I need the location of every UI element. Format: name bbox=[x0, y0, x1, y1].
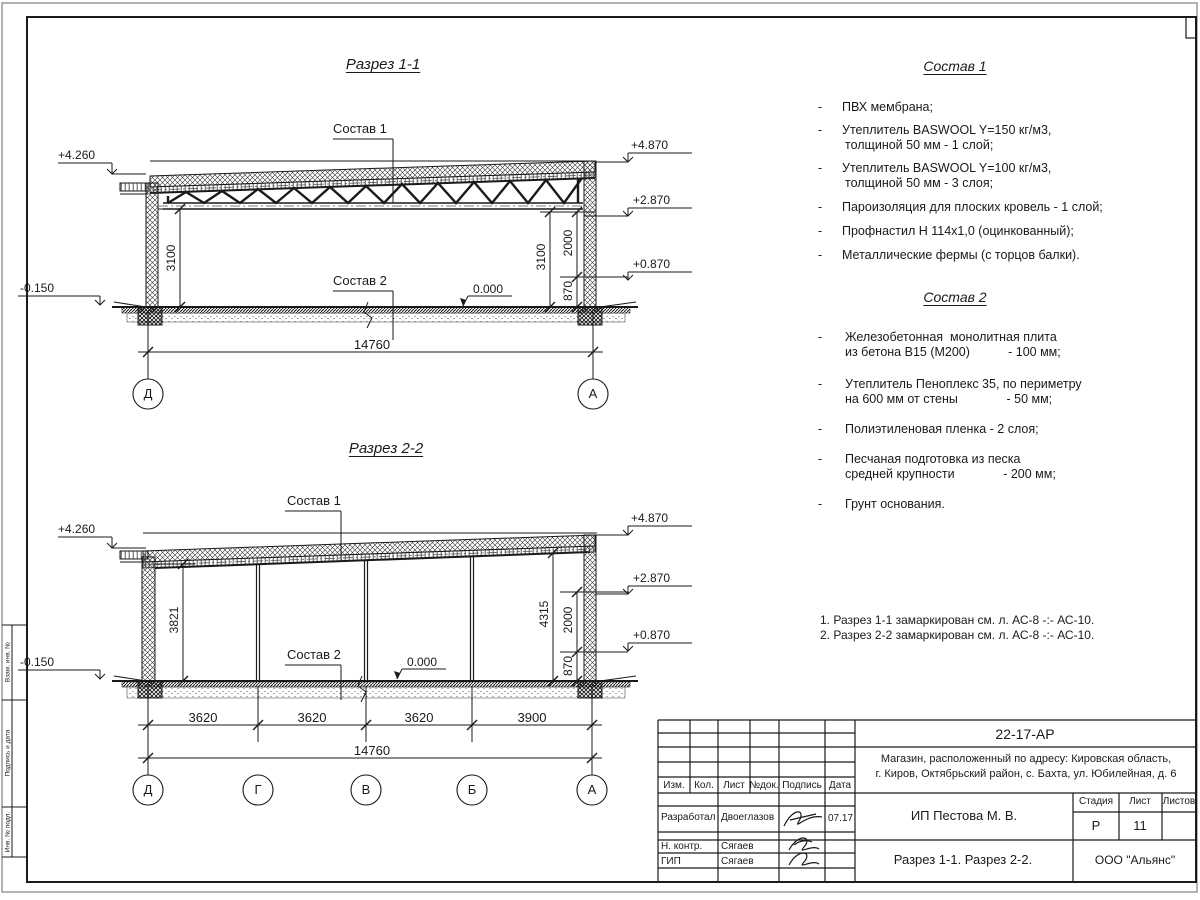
list-item: Утеплитель BASWOOL Y=150 кг/м3, bbox=[842, 123, 1051, 138]
list-item: Грунт основания. bbox=[845, 497, 945, 512]
elevation-mark: +2.870 bbox=[633, 571, 670, 585]
list-marker: - bbox=[818, 224, 822, 239]
note-line: 1. Разрез 1-1 замаркирован см. л. АС-8 -… bbox=[820, 613, 1094, 627]
section-2-2-title: Разрез 2-2 bbox=[349, 440, 423, 458]
object-name-line1: Магазин, расположенный по адресу: Кировс… bbox=[881, 753, 1171, 766]
corner-cell bbox=[1186, 17, 1196, 38]
role-label: ГИП bbox=[661, 856, 681, 868]
strip-label-inv: Инв. № подл. bbox=[5, 812, 12, 853]
dimension-text: 3620 bbox=[405, 710, 434, 725]
list-marker: - bbox=[818, 123, 822, 138]
elevation-mark: 0.000 bbox=[407, 655, 437, 669]
col-header-date: Дата bbox=[829, 780, 851, 792]
person-name: Двоеглазов bbox=[721, 812, 774, 824]
sheet-header: Лист bbox=[1129, 796, 1151, 808]
sostav2-leader-label: Состав 2 bbox=[287, 647, 341, 662]
list-marker: - bbox=[818, 497, 822, 512]
stage-value: Р bbox=[1092, 818, 1101, 833]
stage-header: Стадия bbox=[1079, 796, 1113, 808]
elevation-mark: +2.870 bbox=[633, 193, 670, 207]
sostav1-leader-label: Состав 1 bbox=[333, 121, 387, 136]
col-header-list: Лист bbox=[723, 780, 745, 792]
list-marker: - bbox=[818, 377, 822, 392]
elevation-mark: +4.870 bbox=[631, 138, 668, 152]
list-item: Утеплитель BASWOOL Y=100 кг/м3, bbox=[842, 161, 1051, 176]
list-item: Профнастил Н 114х1,0 (оцинкованный); bbox=[842, 224, 1074, 239]
list-item: Железобетонная монолитная плита bbox=[845, 330, 1057, 345]
dimension-text: 2000 bbox=[561, 607, 575, 634]
axis-bubble-label: Д bbox=[144, 386, 153, 401]
elevation-mark: +4.260 bbox=[58, 148, 95, 162]
note-line: 2. Разрез 2-2 замаркирован см. л. АС-8 -… bbox=[820, 628, 1094, 642]
axis-bubble-label: Д bbox=[144, 782, 153, 797]
list-marker: - bbox=[818, 100, 822, 115]
dimension-text: 3620 bbox=[298, 710, 327, 725]
date-value: 07.17 bbox=[828, 813, 853, 825]
organization-name: ООО "Альянс" bbox=[1095, 853, 1175, 867]
elevation-mark: -0.150 bbox=[20, 655, 54, 669]
list-item: средней крупности - 200 мм; bbox=[845, 467, 1056, 482]
dimension-text: 3620 bbox=[189, 710, 218, 725]
list-item: Песчаная подготовка из песка bbox=[845, 452, 1021, 467]
person-name: Сягаев bbox=[721, 841, 754, 853]
axis-bubble-label: А bbox=[589, 386, 598, 401]
list-marker: - bbox=[818, 330, 822, 345]
list-marker: - bbox=[818, 248, 822, 263]
dimension-text: 3100 bbox=[534, 244, 548, 271]
axis-bubble-label: В bbox=[362, 782, 371, 797]
elevation-mark: -0.150 bbox=[20, 281, 54, 295]
strip-label-vzam: Взам. инв. № bbox=[5, 642, 12, 682]
sostav2-leader-label: Состав 2 bbox=[333, 273, 387, 288]
dimension-text: 870 bbox=[561, 656, 575, 676]
axis-bubble-label: Б bbox=[468, 782, 477, 797]
sheet-title: Разрез 1-1. Разрез 2-2. bbox=[894, 852, 1032, 867]
list-item: Полиэтиленовая пленка - 2 слоя; bbox=[845, 422, 1039, 437]
dimension-text: 14760 bbox=[354, 337, 390, 352]
dimension-text: 3900 bbox=[518, 710, 547, 725]
sostav1-leader-label: Состав 1 bbox=[287, 493, 341, 508]
role-label: Разработал bbox=[661, 812, 715, 824]
sostav1-heading: Состав 1 bbox=[923, 58, 986, 75]
sostav2-heading: Состав 2 bbox=[923, 289, 986, 306]
elevation-mark: +0.870 bbox=[633, 257, 670, 271]
axis-bubble-label: Г bbox=[254, 782, 261, 797]
elevation-mark: +0.870 bbox=[633, 628, 670, 642]
person-name: Сягаев bbox=[721, 856, 754, 868]
col-header-kol: Кол. bbox=[694, 780, 714, 792]
list-marker: - bbox=[818, 161, 822, 176]
list-item: Утеплитель Пеноплекс 35, по периметру bbox=[845, 377, 1082, 392]
col-header-sign: Подпись bbox=[782, 780, 822, 792]
list-item: Пароизоляция для плоских кровель - 1 сло… bbox=[842, 200, 1103, 215]
sheet-number: 11 bbox=[1133, 818, 1147, 833]
dimension-text: 14760 bbox=[354, 743, 390, 758]
role-label: Н. контр. bbox=[661, 841, 702, 853]
list-item: толщиной 50 мм - 3 слоя; bbox=[845, 176, 993, 191]
axis-bubble-label: А bbox=[588, 782, 597, 797]
list-marker: - bbox=[818, 200, 822, 215]
elevation-mark: +4.870 bbox=[631, 511, 668, 525]
dimension-text: 3821 bbox=[167, 607, 181, 634]
strip-label-podpis: Подпись и дата bbox=[5, 730, 12, 777]
signature-marks bbox=[784, 812, 822, 865]
col-header-izm: Изм. bbox=[663, 780, 684, 792]
list-marker: - bbox=[818, 452, 822, 467]
doc-number: 22-17-АР bbox=[995, 726, 1054, 743]
col-header-ndok: №док. bbox=[749, 780, 778, 792]
list-item: ПВХ мембрана; bbox=[842, 100, 933, 115]
list-marker: - bbox=[818, 422, 822, 437]
list-item: толщиной 50 мм - 1 слой; bbox=[845, 138, 993, 153]
list-item: из бетона В15 (М200) - 100 мм; bbox=[845, 345, 1061, 360]
list-item: Металлические фермы (с торцов балки). bbox=[842, 248, 1080, 263]
sheets-header: Листов bbox=[1163, 796, 1196, 808]
object-name-line2: г. Киров, Октябрьский район, с. Бахта, у… bbox=[876, 768, 1177, 781]
elevation-mark: +4.260 bbox=[58, 522, 95, 536]
elevation-mark: 0.000 bbox=[473, 282, 503, 296]
dimension-text: 870 bbox=[561, 281, 575, 301]
section-2-2-drawing bbox=[18, 511, 692, 805]
dimension-text: 4315 bbox=[537, 601, 551, 628]
list-item: на 600 мм от стены - 50 мм; bbox=[845, 392, 1052, 407]
dimension-text: 2000 bbox=[561, 230, 575, 257]
drawing-sheet: Разрез 1-1 Состав 1 Состав 2 +4.260 -0.1… bbox=[0, 0, 1200, 900]
client-name: ИП Пестова М. В. bbox=[911, 808, 1017, 823]
dimension-text: 3100 bbox=[164, 245, 178, 272]
section-1-1-title: Разрез 1-1 bbox=[346, 56, 420, 74]
